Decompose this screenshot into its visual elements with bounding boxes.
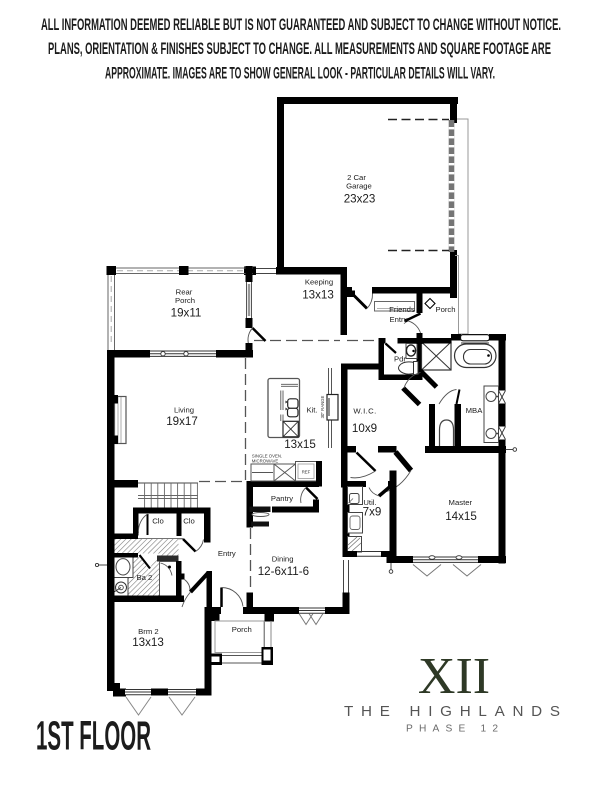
svg-text:Keeping: Keeping — [305, 278, 333, 287]
svg-text:Living: Living — [174, 405, 194, 414]
svg-text:REF: REF — [302, 470, 311, 475]
svg-text:Kit.: Kit. — [306, 405, 317, 414]
svg-text:ALL INFORMATION DEEMED RELIABL: ALL INFORMATION DEEMED RELIABLE BUT IS N… — [41, 15, 561, 34]
svg-text:Entry: Entry — [390, 315, 408, 324]
svg-text:Ba 2: Ba 2 — [136, 573, 152, 582]
svg-text:1ST FLOOR: 1ST FLOOR — [36, 713, 151, 759]
svg-text:Porch: Porch — [232, 625, 252, 634]
svg-text:Pdr: Pdr — [394, 354, 406, 363]
svg-text:Entry: Entry — [218, 549, 236, 558]
svg-text:XII: XII — [418, 648, 490, 705]
svg-text:14x15: 14x15 — [445, 510, 477, 523]
svg-text:Friends: Friends — [389, 305, 415, 314]
svg-text:MICROWAVE: MICROWAVE — [252, 459, 279, 464]
svg-text:13x13: 13x13 — [132, 636, 164, 649]
svg-text:Garage: Garage — [346, 182, 372, 191]
svg-text:10x9: 10x9 — [352, 422, 377, 435]
svg-text:Porch: Porch — [175, 296, 195, 305]
svg-text:Brm 2: Brm 2 — [138, 627, 159, 636]
svg-text:W.I.C.: W.I.C. — [353, 406, 376, 415]
svg-text:30" RANGE: 30" RANGE — [320, 395, 325, 418]
svg-text:12-6x11-6: 12-6x11-6 — [258, 565, 309, 578]
svg-text:Clo: Clo — [152, 517, 164, 526]
svg-text:Pantry: Pantry — [271, 494, 293, 503]
svg-text:19x11: 19x11 — [171, 306, 202, 319]
svg-text:Porch: Porch — [435, 305, 455, 314]
svg-text:19x17: 19x17 — [166, 415, 198, 428]
svg-text:PHASE 12: PHASE 12 — [406, 724, 498, 735]
svg-text:APPROXIMATE. IMAGES ARE TO SHO: APPROXIMATE. IMAGES ARE TO SHOW GENERAL … — [105, 63, 495, 82]
svg-text:Dining: Dining — [272, 554, 294, 563]
svg-text:7x9: 7x9 — [363, 505, 382, 518]
svg-text:PLANS, ORIENTATION & FINISHES: PLANS, ORIENTATION & FINISHES SUBJECT TO… — [48, 39, 551, 58]
svg-text:Master: Master — [449, 498, 473, 507]
svg-text:13x15: 13x15 — [284, 438, 316, 451]
svg-text:23x23: 23x23 — [344, 193, 376, 206]
svg-text:13x13: 13x13 — [302, 289, 334, 302]
svg-text:MBA: MBA — [466, 406, 484, 415]
svg-text:Clo: Clo — [183, 517, 195, 526]
